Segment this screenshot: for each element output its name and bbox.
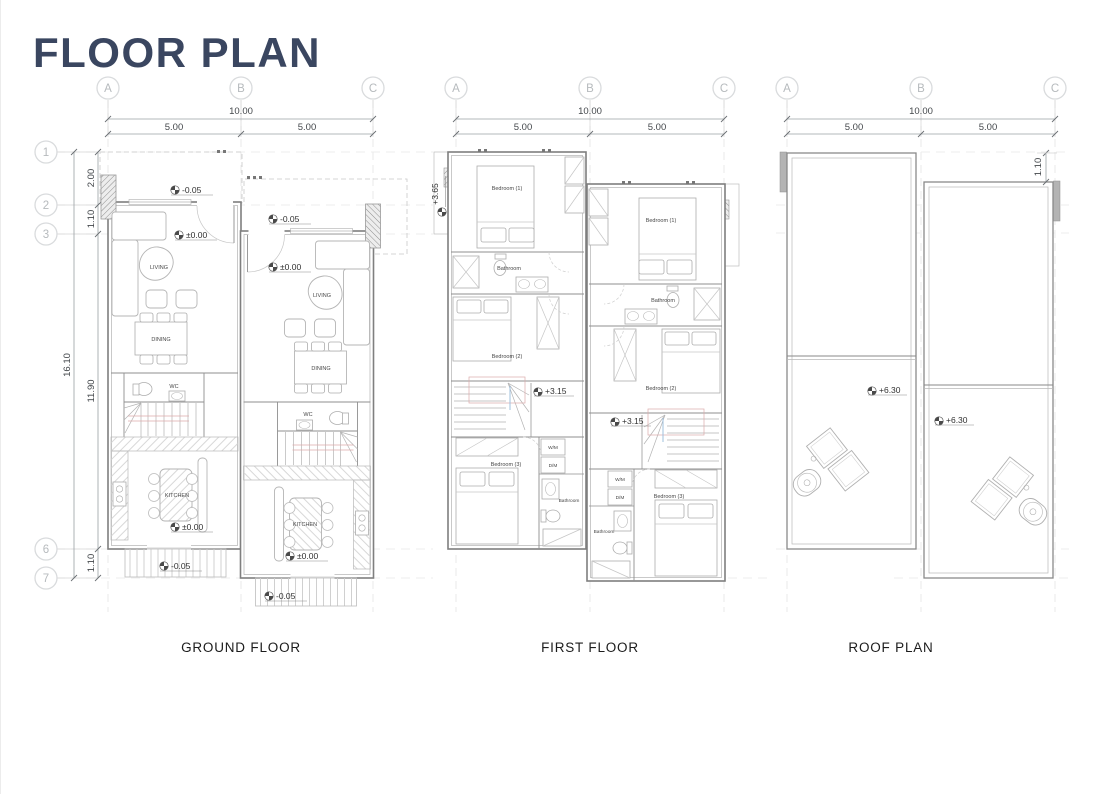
roof-unit-right bbox=[924, 181, 1062, 578]
first-unit-right bbox=[587, 181, 739, 581]
dim-label: 5.00 bbox=[648, 122, 667, 133]
room-label-wm: W/M bbox=[615, 477, 625, 483]
caption-first-floor: FIRST FLOOR bbox=[541, 640, 639, 655]
room-label-bedroom3: Bedroom (3) bbox=[654, 494, 685, 500]
room-label-kitchen: KITCHEN bbox=[293, 522, 317, 528]
ground-unit-left bbox=[101, 175, 241, 577]
room-label-bedroom1: Bedroom (1) bbox=[646, 218, 677, 224]
level-marker: +6.30 bbox=[946, 415, 968, 425]
grid-bubble-b: B bbox=[586, 83, 594, 95]
dim-label: 5.00 bbox=[298, 122, 317, 133]
room-label-bedroom1: Bedroom (1) bbox=[492, 186, 523, 192]
canopy-outline bbox=[100, 152, 242, 203]
top-dimensions: 10.00 5.00 5.00 bbox=[105, 106, 376, 137]
dim-label: 5.00 bbox=[845, 122, 864, 133]
grid-bubble-a: A bbox=[104, 83, 112, 95]
room-label-dining: DINING bbox=[311, 366, 330, 372]
ground-unit-right bbox=[241, 204, 381, 606]
first-unit-left bbox=[434, 149, 586, 549]
room-label-bedroom2: Bedroom (2) bbox=[492, 354, 523, 360]
room-label-bedroom3: Bedroom (3) bbox=[491, 462, 522, 468]
grid-bubble-1: 1 bbox=[43, 147, 49, 159]
room-label-bathroom-small: Bathroom bbox=[559, 498, 580, 504]
grid-bubble-c: C bbox=[720, 83, 728, 95]
room-label-wm: W/M bbox=[548, 445, 558, 451]
room-label-wc: WC bbox=[169, 384, 178, 390]
room-label-living: LIVING bbox=[150, 265, 168, 271]
grid-bubble-2: 2 bbox=[43, 200, 49, 212]
dim-label: 16.10 bbox=[62, 353, 73, 377]
room-label-dm: D/M bbox=[616, 495, 625, 501]
dim-label: 10.00 bbox=[909, 106, 933, 117]
roof-unit-left bbox=[778, 152, 916, 549]
grid-bubble-b: B bbox=[917, 83, 925, 95]
level-marker: ±0.00 bbox=[297, 551, 318, 561]
room-label-bathroom: Bathroom bbox=[651, 298, 675, 304]
caption-ground-floor: GROUND FLOOR bbox=[181, 640, 301, 655]
level-marker: ±0.00 bbox=[186, 230, 207, 240]
grid-bubble-3: 3 bbox=[43, 229, 49, 241]
dim-label: 10.00 bbox=[578, 106, 602, 117]
room-label-wc: WC bbox=[303, 412, 312, 418]
grid-bubble-a: A bbox=[452, 83, 460, 95]
dim-label: 5.00 bbox=[165, 122, 184, 133]
room-label-kitchen: KITCHEN bbox=[165, 493, 189, 499]
room-label-bathroom-small: Bathroom bbox=[594, 529, 615, 535]
caption-roof-plan: ROOF PLAN bbox=[848, 640, 933, 655]
ground-floor-plan: A B C 10.00 5.00 5.00 1 2 3 6 7 bbox=[35, 77, 407, 655]
room-label-bathroom: Bathroom bbox=[497, 266, 521, 272]
level-marker: -0.05 bbox=[276, 591, 296, 601]
page-title: FLOOR PLAN bbox=[33, 29, 321, 76]
level-marker: +3.15 bbox=[622, 416, 644, 426]
floor-plan-drawing: FLOOR PLAN A B C 10.00 5.00 bbox=[1, 0, 1114, 794]
roof-offset-dimension: 1.10 bbox=[1033, 150, 1057, 185]
level-marker: +6.30 bbox=[879, 385, 901, 395]
grid-bubble-c: C bbox=[369, 83, 377, 95]
dim-label: 5.00 bbox=[979, 122, 998, 133]
level-marker: +3.65 bbox=[430, 183, 440, 205]
grid-bubble-7: 7 bbox=[43, 573, 49, 585]
level-marker: +3.15 bbox=[545, 386, 567, 396]
dim-label: 1.10 bbox=[86, 554, 97, 573]
dim-label: 1.10 bbox=[1033, 158, 1044, 177]
room-label-bedroom2: Bedroom (2) bbox=[646, 386, 677, 392]
grid-bubble-a: A bbox=[783, 83, 791, 95]
room-label-dm: D/M bbox=[549, 463, 558, 469]
level-marker: -0.05 bbox=[171, 561, 191, 571]
level-marker: -0.05 bbox=[280, 214, 300, 224]
left-dimensions: 2.00 1.10 11.90 1.10 16.10 bbox=[62, 149, 101, 581]
room-label-dining: DINING bbox=[151, 337, 170, 343]
first-floor-plan: A B C 10.00 5.00 5.00 Bedroom (1) Bathro… bbox=[430, 77, 739, 655]
dim-label: 2.00 bbox=[86, 169, 97, 188]
dim-label: 1.10 bbox=[86, 210, 97, 229]
level-marker: ±0.00 bbox=[182, 522, 203, 532]
grid-bubble-b: B bbox=[237, 83, 245, 95]
level-marker: -0.05 bbox=[182, 185, 202, 195]
grid-bubble-6: 6 bbox=[43, 544, 49, 556]
dim-label: 5.00 bbox=[514, 122, 533, 133]
dim-label: 11.90 bbox=[86, 379, 97, 402]
level-marker: ±0.00 bbox=[280, 262, 301, 272]
room-label-living: LIVING bbox=[313, 293, 331, 299]
dim-label: 10.00 bbox=[229, 106, 253, 117]
floor-plan-sheet: FLOOR PLAN A B C 10.00 5.00 bbox=[0, 0, 1114, 794]
grid-bubble-c: C bbox=[1051, 83, 1059, 95]
